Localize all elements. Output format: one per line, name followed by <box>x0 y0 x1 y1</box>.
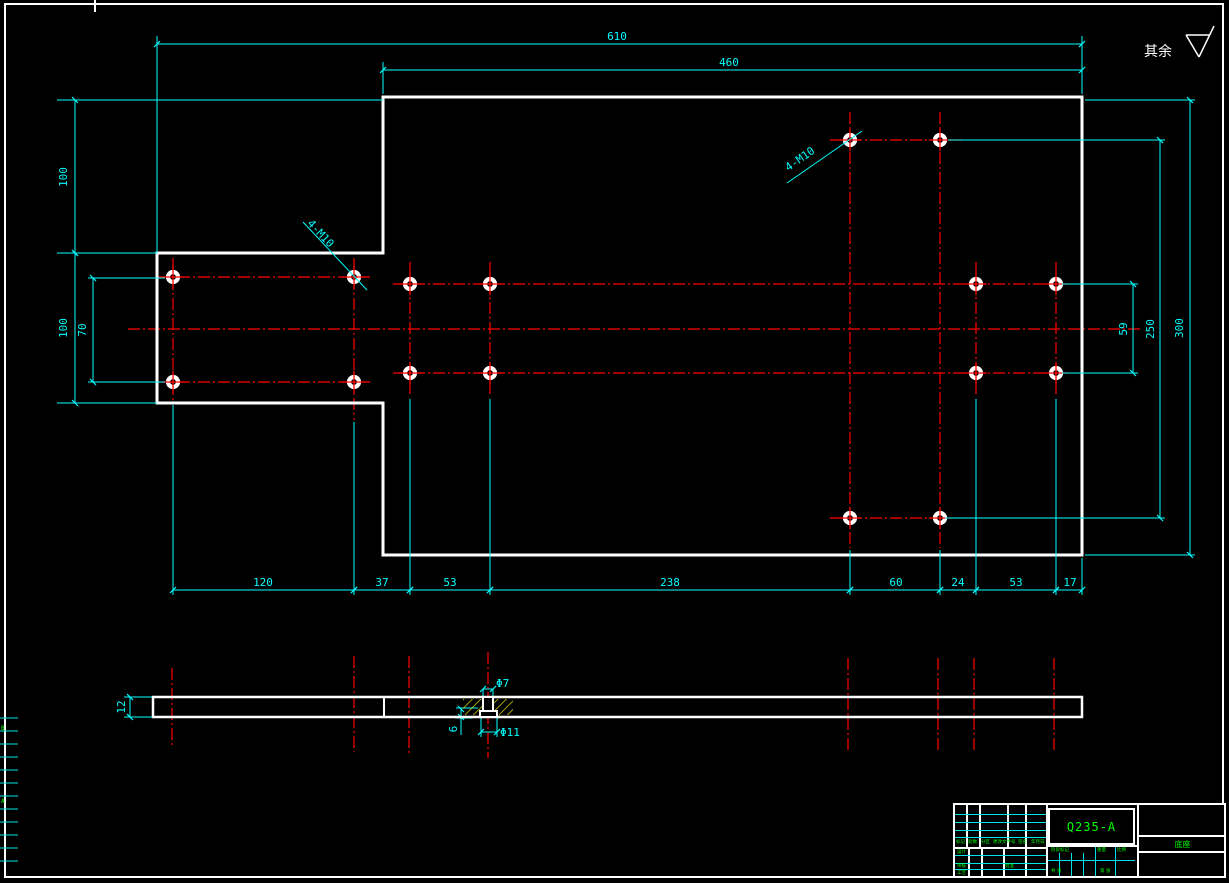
title-block-rule <box>1115 847 1116 876</box>
title-block-rule <box>1071 853 1072 876</box>
drawing-canvas: B A 其余 <box>0 0 1229 883</box>
tb-header-count: 处数 <box>968 840 977 845</box>
tb-label-approve: 批准 <box>1005 864 1014 869</box>
dim-hole-top-dia: Φ7 <box>496 677 509 690</box>
section-plate <box>153 697 1082 717</box>
hole <box>343 371 365 393</box>
part-outline <box>157 97 1082 555</box>
dim-right-hole-spacing: 59 <box>1117 322 1130 335</box>
sheet-border <box>5 0 1223 877</box>
title-block-divider <box>968 847 970 876</box>
dim-plate-thickness: 12 <box>115 700 128 713</box>
tb-weight-label: 重量 <box>1097 848 1106 853</box>
dim-chain-2: 37 <box>375 576 388 589</box>
counterbore-bottom-hole <box>480 711 497 717</box>
tb-header-date: 年月日 <box>1031 840 1045 845</box>
title-block-divider <box>981 847 983 876</box>
dim-chain-4: 238 <box>660 576 680 589</box>
dim-top-total: 610 <box>607 30 627 43</box>
tb-sheet-no: 第 张 <box>1100 869 1110 874</box>
centerlines <box>128 112 1140 758</box>
title-block-rule <box>955 863 1046 864</box>
title-block-rule <box>1095 847 1096 876</box>
hole <box>162 266 184 288</box>
tb-header-docno: 更改文件号 <box>993 840 1016 845</box>
tb-label-check: 审核 <box>957 864 966 869</box>
dim-chain-7: 53 <box>1009 576 1022 589</box>
dim-top-body: 460 <box>719 56 739 69</box>
title-block-rule <box>955 830 1046 831</box>
title-block: Q235-A 底座 标记 处数 分区 更改文件号 签名 年月日 设计 审核 工艺… <box>953 803 1226 878</box>
dim-right-height: 300 <box>1173 318 1186 338</box>
title-block-rule <box>955 837 1046 838</box>
hole <box>839 507 861 529</box>
dim-left-lower: 100 <box>57 318 70 338</box>
margin-ruler <box>0 718 18 861</box>
title-block-rule <box>955 822 1046 823</box>
cad-drawing-sheet: B A 其余 <box>0 0 1229 883</box>
zone-letter: A <box>1 798 5 805</box>
title-block-rule <box>955 814 1046 815</box>
hole <box>965 362 987 384</box>
thread-callout-left: 4-M10 <box>305 217 337 250</box>
hole <box>399 273 421 295</box>
hole <box>399 362 421 384</box>
hole <box>839 129 861 151</box>
dim-chain-3: 53 <box>443 576 456 589</box>
material-cell: Q235-A <box>1048 808 1135 845</box>
hole <box>965 273 987 295</box>
tb-stage-label: 阶段标记 <box>1051 848 1069 853</box>
title-block-rule <box>955 855 1046 856</box>
dim-right-row-spacing: 250 <box>1144 319 1157 339</box>
tb-label-process: 工艺 <box>957 871 966 876</box>
title-block-rule <box>1083 853 1084 876</box>
surface-note-text: 其余 <box>1144 43 1172 60</box>
title-block-divider <box>1046 845 1137 847</box>
dim-chain-5: 60 <box>889 576 902 589</box>
title-block-divider <box>1003 847 1005 876</box>
part-name-cell: 底座 <box>1139 836 1226 852</box>
title-block-divider <box>1025 847 1027 876</box>
dim-hole-counterbore-dia: Φ11 <box>500 726 520 739</box>
dim-left-hole-spacing: 70 <box>76 323 89 336</box>
hole <box>479 273 501 295</box>
dimension-lines <box>75 44 1190 732</box>
dim-chain-6: 24 <box>951 576 965 589</box>
dim-counterbore-depth: 6 <box>447 726 460 733</box>
title-block-rule <box>1048 860 1135 861</box>
extension-lines <box>57 36 1195 737</box>
surface-finish-icon <box>1186 26 1214 57</box>
thread-callout-right: 4-M10 <box>783 144 818 174</box>
dim-chain-8: 17 <box>1063 576 1076 589</box>
dim-left-upper: 100 <box>57 167 70 187</box>
tb-sheet-total: 共 张 <box>1051 869 1061 874</box>
hole <box>479 362 501 384</box>
zone-letter: B <box>1 725 5 732</box>
counterbore-top-hole <box>483 697 493 712</box>
hole <box>929 129 951 151</box>
leader-lines <box>303 131 862 290</box>
dim-chain-1: 120 <box>253 576 273 589</box>
hole <box>162 371 184 393</box>
tb-label-design: 设计 <box>957 850 966 855</box>
tb-header-mark: 标记 <box>956 840 965 845</box>
tb-header-zone: 分区 <box>981 840 990 845</box>
section-view <box>153 697 1082 717</box>
title-block-rule <box>955 869 1046 870</box>
tb-header-sign: 签名 <box>1018 840 1027 845</box>
tb-scale-label: 比例 <box>1117 848 1126 853</box>
